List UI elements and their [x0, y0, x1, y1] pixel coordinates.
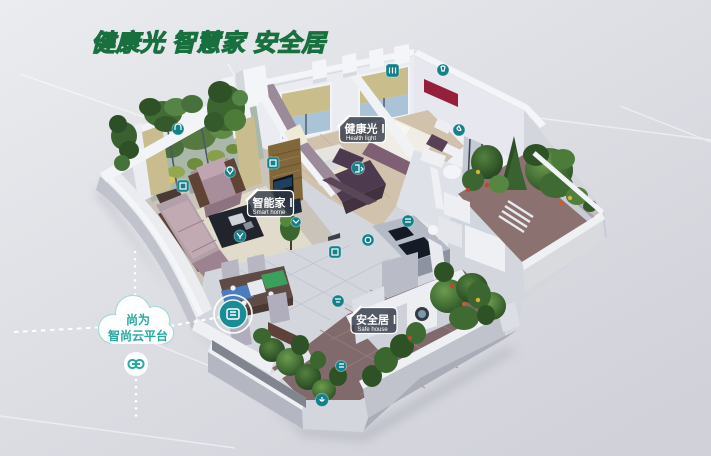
svg-text:健康光 智慧家 安全居: 健康光 智慧家 安全居 — [91, 30, 328, 57]
svg-text:安全居: 安全居 — [356, 313, 389, 327]
svg-text:尚为: 尚为 — [126, 312, 150, 327]
svg-text:智尚云平台: 智尚云平台 — [107, 328, 168, 343]
svg-text:Smart home: Smart home — [253, 210, 286, 216]
svg-text:Safe house: Safe house — [357, 327, 388, 333]
svg-text:健康光: 健康光 — [345, 122, 378, 136]
svg-text:智能家: 智能家 — [253, 196, 287, 210]
svg-text:Health light: Health light — [346, 136, 376, 142]
